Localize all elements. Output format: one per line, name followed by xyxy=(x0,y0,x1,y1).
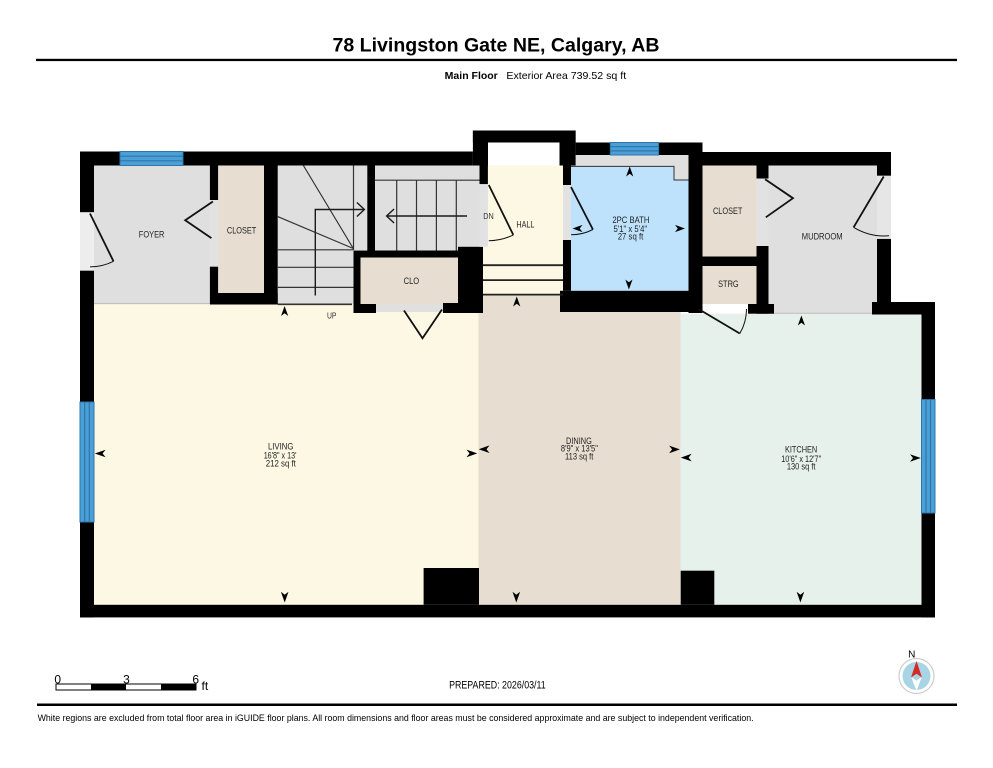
svg-text:0: 0 xyxy=(54,672,61,686)
svg-text:212 sq ft: 212 sq ft xyxy=(266,458,297,468)
svg-text:N: N xyxy=(908,650,915,661)
svg-text:DN: DN xyxy=(483,212,494,221)
svg-text:CLOSET: CLOSET xyxy=(227,226,257,236)
svg-text:3: 3 xyxy=(123,672,130,686)
svg-text:STRG: STRG xyxy=(718,279,739,289)
svg-text:113 sq ft: 113 sq ft xyxy=(565,451,594,461)
svg-text:130 sq ft: 130 sq ft xyxy=(787,462,816,472)
svg-text:CLOSET: CLOSET xyxy=(713,206,743,216)
svg-text:White regions are excluded fro: White regions are excluded from total fl… xyxy=(38,713,754,724)
svg-text:6: 6 xyxy=(192,672,199,686)
svg-text:ft: ft xyxy=(202,679,209,693)
svg-text:27 sq ft: 27 sq ft xyxy=(618,232,644,242)
svg-text:MUDROOM: MUDROOM xyxy=(802,232,843,242)
svg-text:PREPARED: 2026/03/11: PREPARED: 2026/03/11 xyxy=(449,679,546,691)
svg-text:FOYER: FOYER xyxy=(139,230,165,240)
svg-text:UP: UP xyxy=(327,312,337,321)
svg-text:78 Livingston Gate NE, Calgary: 78 Livingston Gate NE, Calgary, AB xyxy=(333,36,660,57)
svg-text:HALL: HALL xyxy=(516,220,534,230)
svg-text:CLO: CLO xyxy=(404,276,420,286)
svg-text:Exterior Area 739.52 sq ft: Exterior Area 739.52 sq ft xyxy=(506,70,626,82)
svg-text:Main Floor: Main Floor xyxy=(445,70,498,82)
